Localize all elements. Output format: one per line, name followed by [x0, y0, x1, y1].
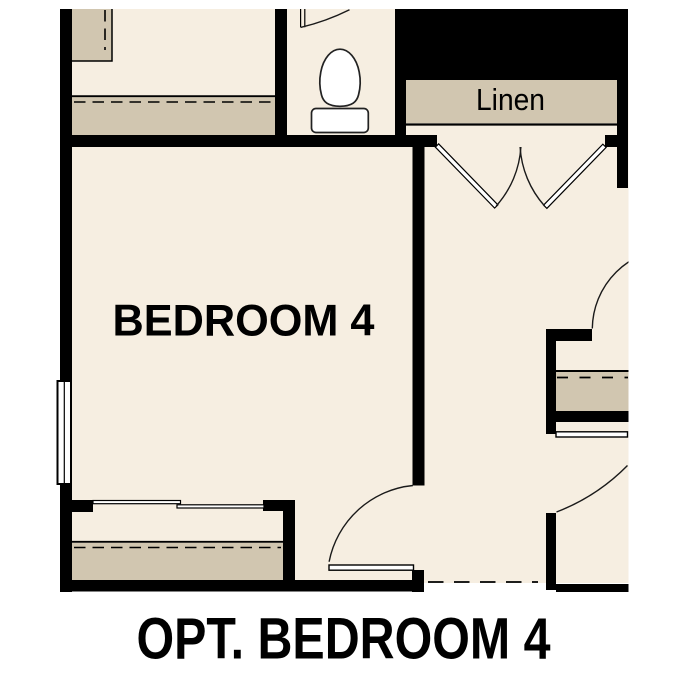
- svg-text:Linen: Linen: [476, 82, 545, 117]
- svg-text:BEDROOM 4: BEDROOM 4: [113, 297, 375, 346]
- svg-text:OPT. BEDROOM 4: OPT. BEDROOM 4: [137, 607, 551, 672]
